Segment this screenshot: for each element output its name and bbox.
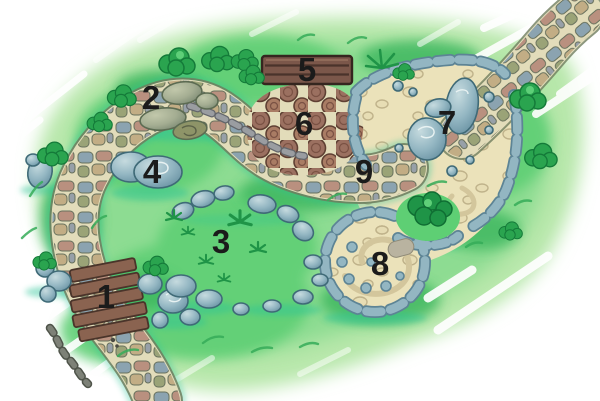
island-bush-highlight xyxy=(424,199,432,207)
marker-6: 6 xyxy=(295,105,313,142)
marker-2: 2 xyxy=(142,79,160,116)
marker-4: 4 xyxy=(143,153,162,190)
bush-highlight xyxy=(176,51,184,59)
marker-5: 5 xyxy=(298,51,316,88)
garden-plan-illustration: 1 2 3 4 5 6 7 8 9 xyxy=(0,0,600,401)
marker-1: 1 xyxy=(97,278,115,315)
small-pebble xyxy=(115,344,119,348)
marker-7: 7 xyxy=(438,104,456,141)
small-pebble xyxy=(111,338,115,342)
marker-9: 9 xyxy=(355,153,373,190)
marker-3: 3 xyxy=(212,223,230,260)
bush-highlight xyxy=(526,86,534,94)
garden-plan-figure: 1 2 3 4 5 6 7 8 9 xyxy=(0,0,600,401)
marker-8: 8 xyxy=(371,245,389,282)
